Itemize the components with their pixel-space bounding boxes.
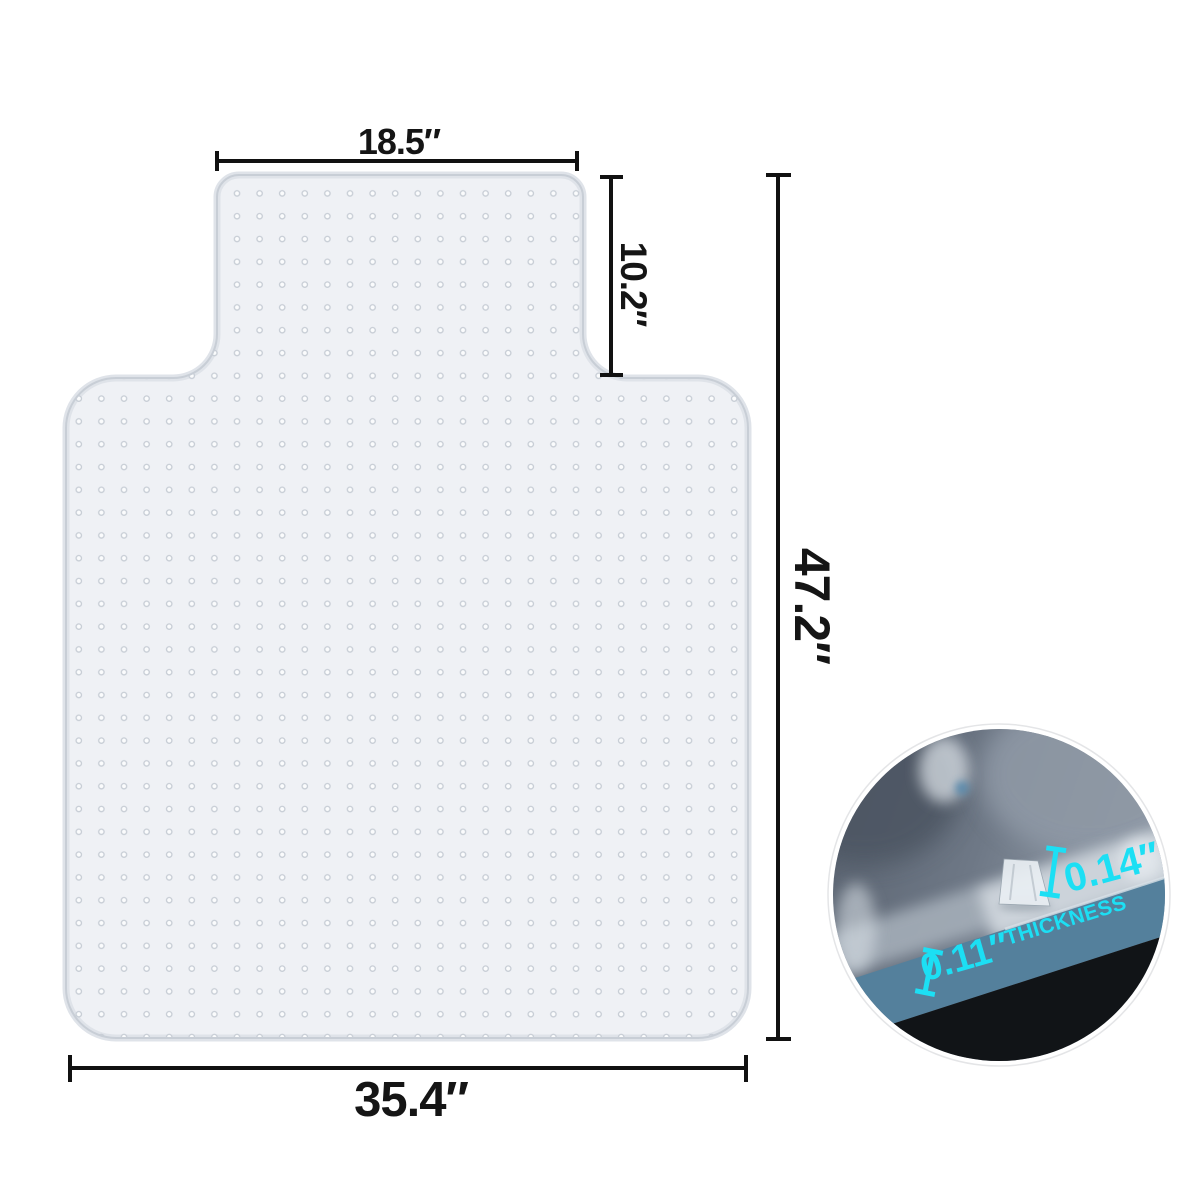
- overall-length-label: 47.2″: [783, 548, 841, 664]
- thickness-inset-photo: [770, 695, 1200, 1110]
- chair-mat-dimension-diagram: 18.5″ 10.2″ 47.2″ 35.4″ 0.14″ 0.11″ THIC…: [0, 0, 1200, 1200]
- overall-width-label: 35.4″: [354, 1072, 468, 1128]
- lip-width-label: 18.5″: [358, 121, 440, 163]
- inset-light-topright: [980, 695, 1200, 855]
- blurred-stud-blue-glint: [955, 781, 969, 795]
- diagram-graphics: [0, 0, 1200, 1200]
- lip-depth-label: 10.2″: [612, 242, 654, 327]
